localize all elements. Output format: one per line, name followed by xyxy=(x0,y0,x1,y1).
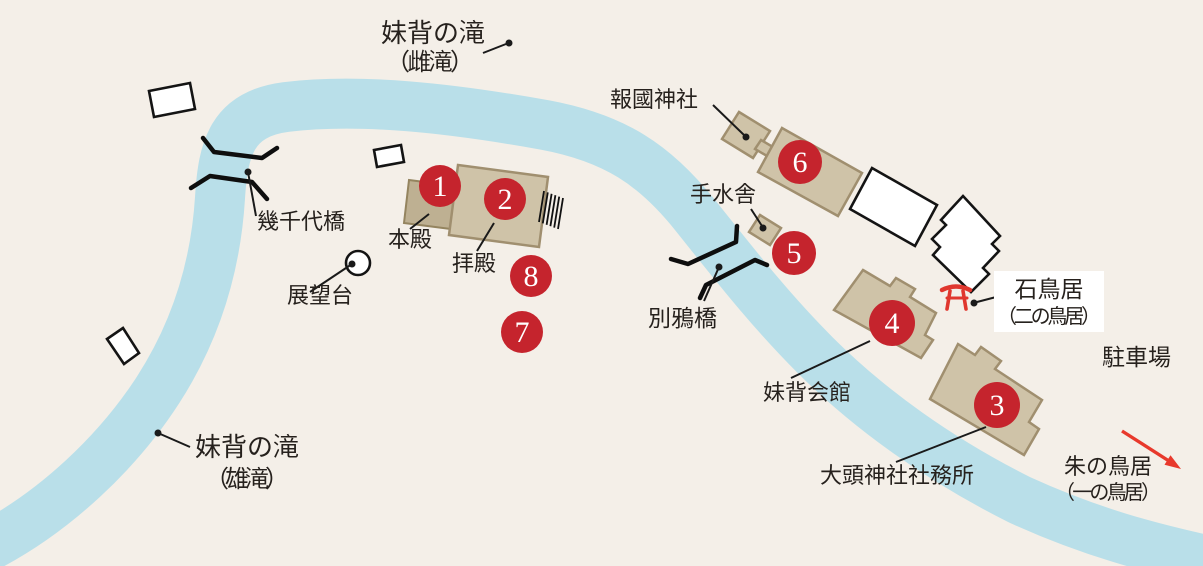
marker-3: 3 xyxy=(974,382,1020,428)
marker-8: 8 xyxy=(510,255,552,297)
marker-2: 2 xyxy=(484,178,526,220)
svg-text:8: 8 xyxy=(524,260,539,293)
label-imose-hall: 妹背会館 xyxy=(763,380,851,405)
label-female-falls-line1: 妹背の滝 xyxy=(381,19,485,48)
label-stone-torii-line1: 石鳥居 xyxy=(1015,277,1084,302)
marker-7: 7 xyxy=(501,311,543,353)
label-ikuchiyo-bridge: 幾千代橋 xyxy=(257,209,345,234)
label-vermilion-torii-line1: 朱の鳥居 xyxy=(1064,454,1152,479)
label-female-falls-line2: （雌滝） xyxy=(386,49,474,76)
svg-text:4: 4 xyxy=(885,307,900,340)
marker-1: 1 xyxy=(419,165,461,207)
label-chozuya: 手水舎 xyxy=(690,182,756,207)
label-observation-deck: 展望台 xyxy=(287,283,353,308)
label-stone-torii-line2: （二の鳥居） xyxy=(997,305,1101,328)
label-shrine-office: 大頭神社社務所 xyxy=(820,463,974,488)
white-building-near-main-hall xyxy=(374,145,404,167)
map-canvas: 妹背の滝 （雌滝） 妹背の滝 （雄滝） 幾千代橋 展望台 本殿 拝殿 報國神社 … xyxy=(0,0,1203,566)
svg-text:7: 7 xyxy=(515,316,530,349)
svg-text:2: 2 xyxy=(498,183,513,216)
label-male-falls-line2: （雄滝） xyxy=(205,466,289,493)
label-male-falls-line1: 妹背の滝 xyxy=(195,433,299,462)
shrine-precinct-map: 妹背の滝 （雌滝） 妹背の滝 （雄滝） 幾千代橋 展望台 本殿 拝殿 報國神社 … xyxy=(0,0,1203,566)
marker-5: 5 xyxy=(772,231,816,275)
svg-text:6: 6 xyxy=(793,146,808,179)
label-worship-hall: 拝殿 xyxy=(452,251,496,276)
svg-text:5: 5 xyxy=(787,237,802,270)
marker-6: 6 xyxy=(778,140,822,184)
marker-4: 4 xyxy=(869,300,915,346)
label-hokoku-shrine: 報國神社 xyxy=(610,87,698,112)
label-bekka-bridge: 別鴉橋 xyxy=(648,306,717,331)
label-vermilion-torii-line2: （一の鳥居） xyxy=(1055,481,1161,504)
label-parking: 駐車場 xyxy=(1102,345,1171,370)
svg-text:1: 1 xyxy=(433,170,448,203)
label-main-hall: 本殿 xyxy=(388,227,432,252)
svg-text:3: 3 xyxy=(990,389,1005,422)
